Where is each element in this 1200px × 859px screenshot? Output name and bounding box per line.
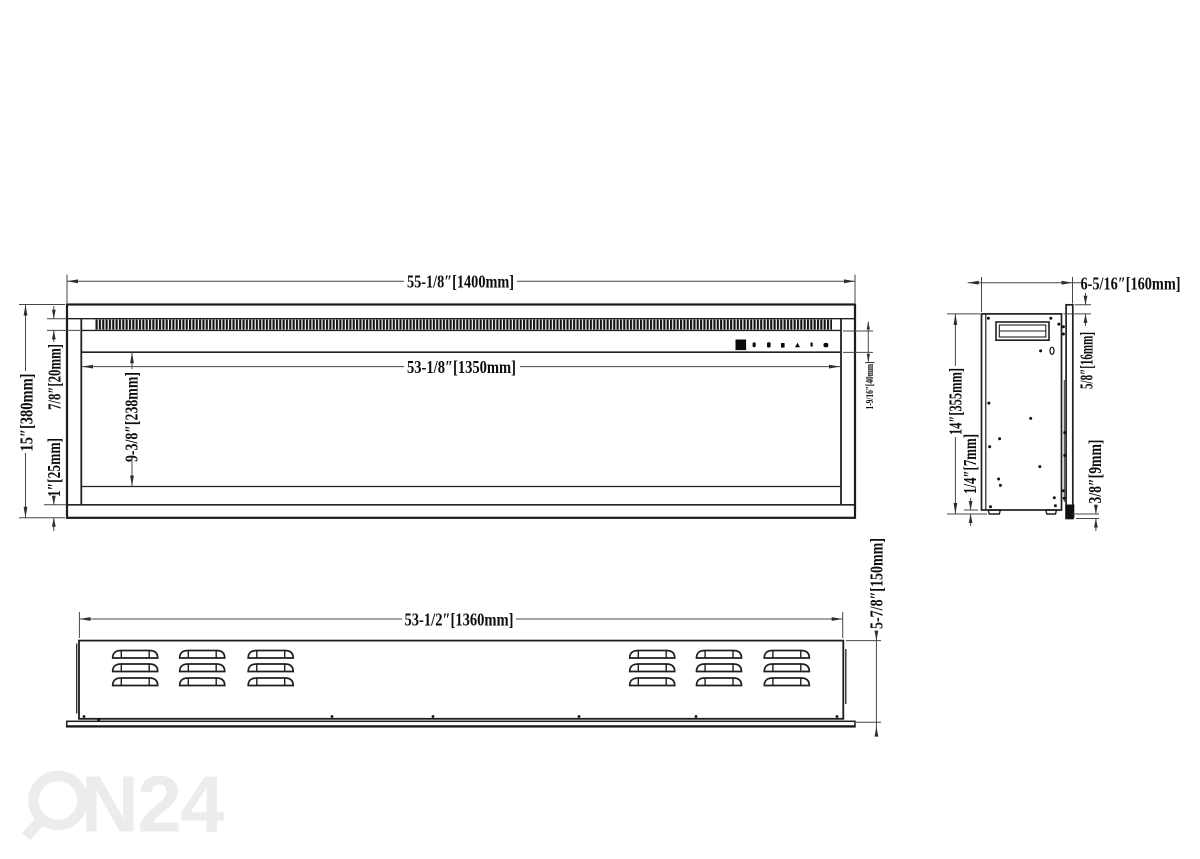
svg-text:1-9/16″[40mm]: 1-9/16″[40mm] <box>865 362 876 410</box>
svg-text:5/8″[16mm]: 5/8″[16mm] <box>1077 332 1097 389</box>
svg-text:1″[25mm]: 1″[25mm] <box>44 438 64 497</box>
svg-text:15″[380mm]: 15″[380mm] <box>17 374 37 452</box>
svg-text:6-5/16″[160mm]: 6-5/16″[160mm] <box>1081 273 1181 293</box>
svg-text:N24: N24 <box>81 760 225 849</box>
svg-text:53-1/2″[1360mm]: 53-1/2″[1360mm] <box>405 610 514 630</box>
svg-text:1/4″[7mm]: 1/4″[7mm] <box>960 434 980 494</box>
svg-text:5-7/8″[150mm]: 5-7/8″[150mm] <box>867 538 887 629</box>
svg-text:55-1/8″[1400mm]: 55-1/8″[1400mm] <box>407 272 514 292</box>
svg-text:53-1/8″[1350mm]: 53-1/8″[1350mm] <box>407 357 516 377</box>
svg-text:14″[355mm]: 14″[355mm] <box>946 368 966 435</box>
svg-text:7/8″[20mm]: 7/8″[20mm] <box>45 344 65 410</box>
svg-text:9-3/8″[238mm]: 9-3/8″[238mm] <box>122 372 142 462</box>
svg-text:3/8″[9mm]: 3/8″[9mm] <box>1085 440 1105 504</box>
